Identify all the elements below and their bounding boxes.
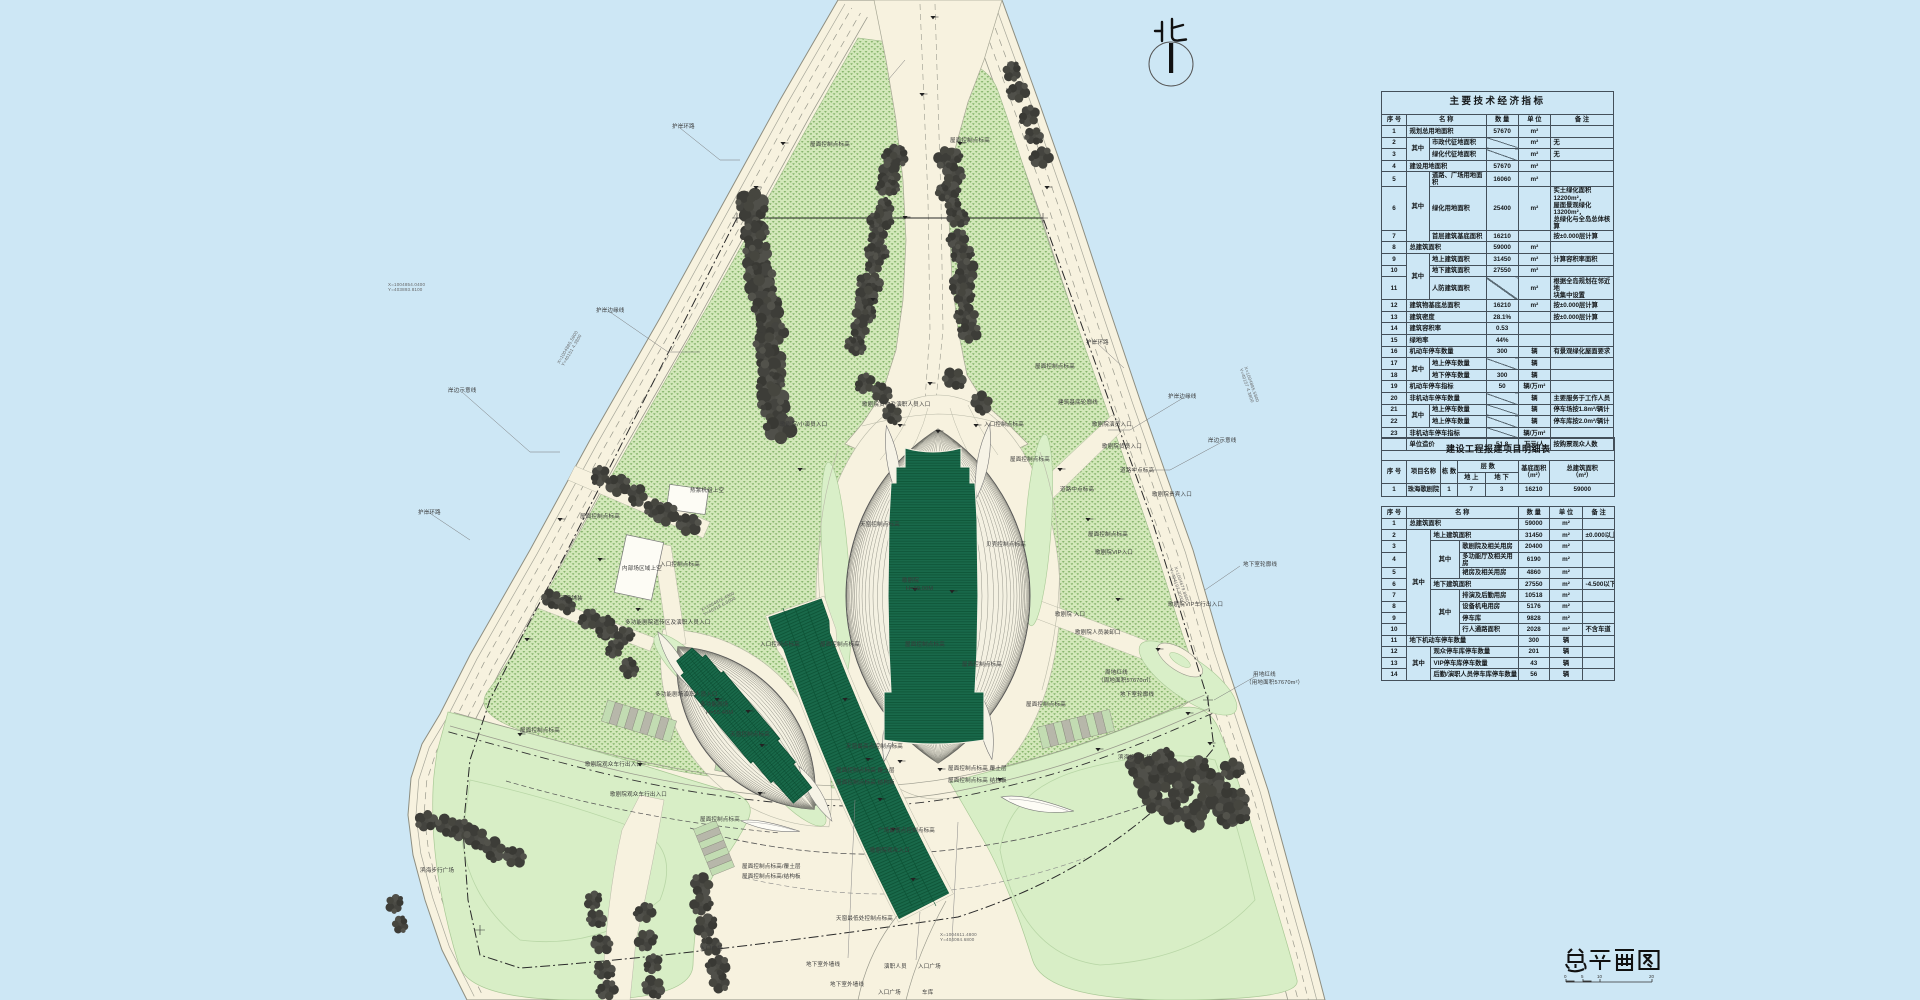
svg-text:0: 0 (1564, 974, 1567, 979)
svg-text:20: 20 (1649, 974, 1655, 979)
svg-text:10: 10 (1597, 974, 1603, 979)
svg-text:5: 5 (1581, 974, 1584, 979)
